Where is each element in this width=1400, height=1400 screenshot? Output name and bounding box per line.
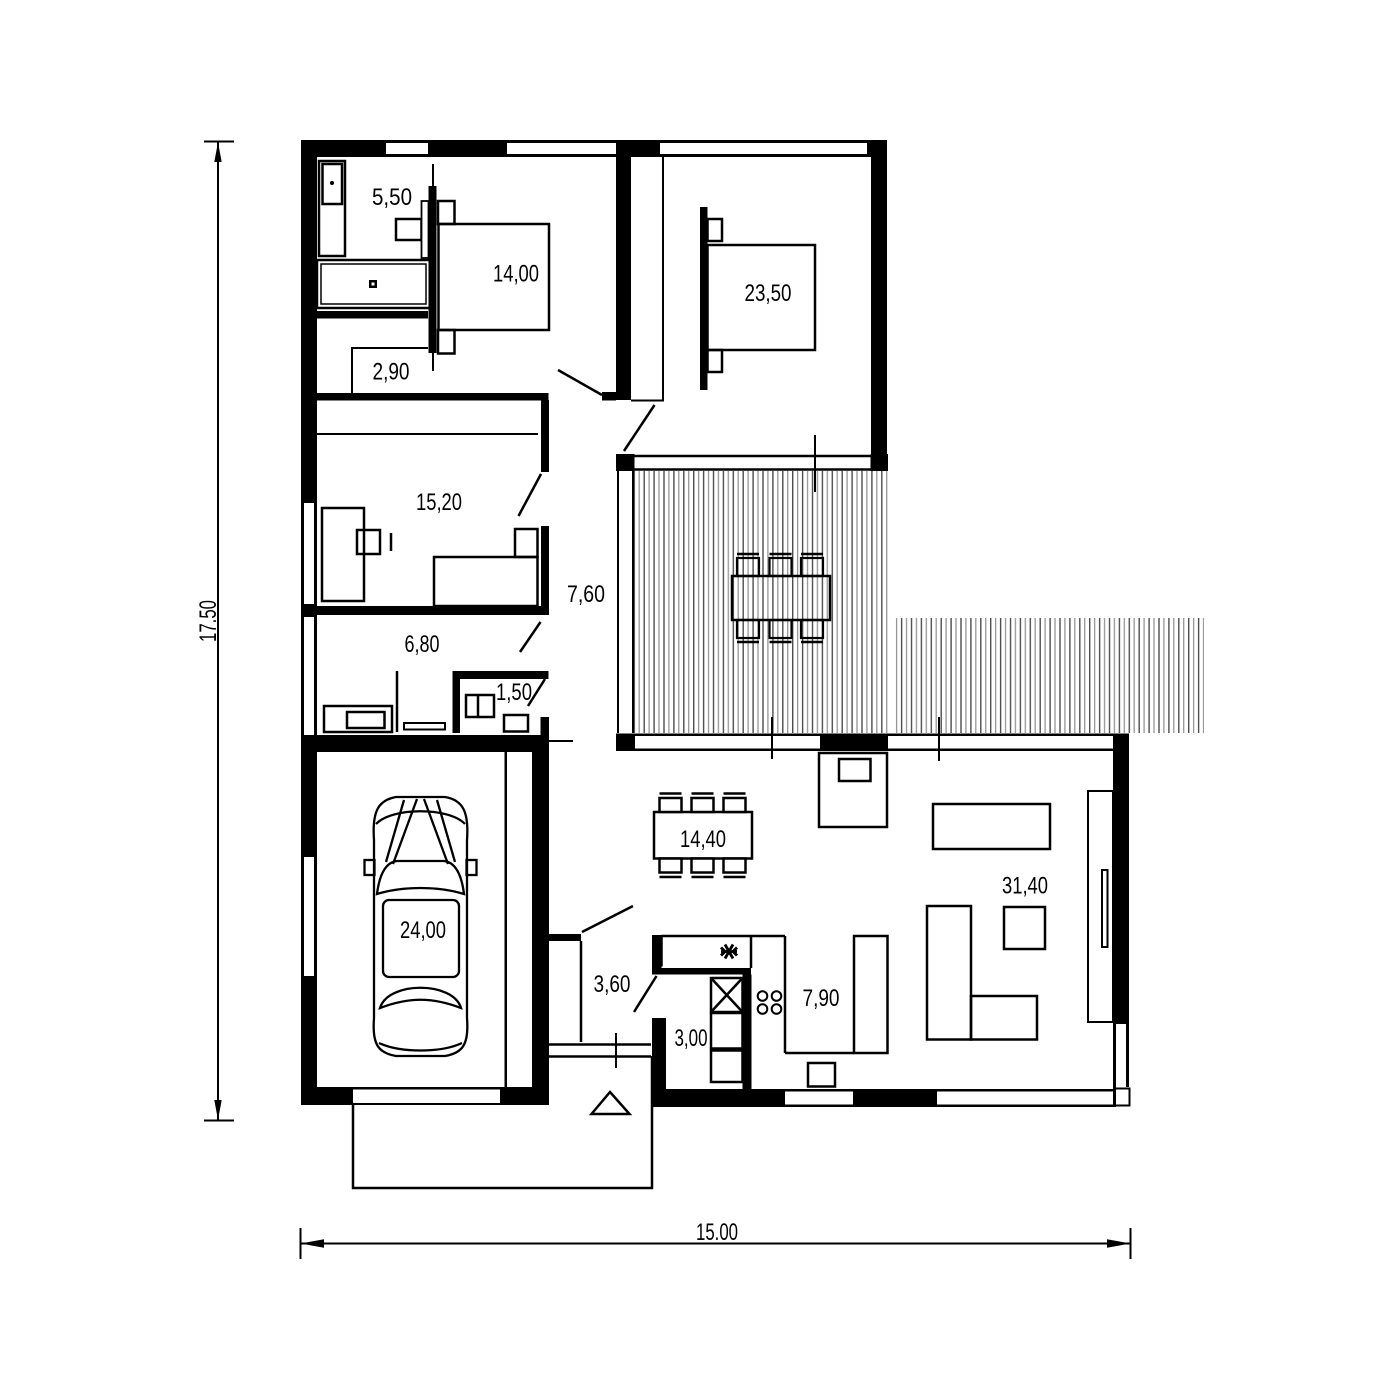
svg-text:23,50: 23,50 <box>745 280 792 307</box>
svg-text:14,00: 14,00 <box>493 261 539 288</box>
svg-text:14,40: 14,40 <box>680 826 726 853</box>
svg-text:17.50: 17.50 <box>195 600 222 642</box>
svg-text:5,50: 5,50 <box>372 184 412 211</box>
svg-text:6,80: 6,80 <box>405 631 440 658</box>
svg-text:1,50: 1,50 <box>496 679 532 706</box>
svg-text:7,60: 7,60 <box>567 581 605 608</box>
svg-text:15,20: 15,20 <box>416 489 462 516</box>
svg-text:24,00: 24,00 <box>400 917 446 944</box>
svg-text:7,90: 7,90 <box>803 985 840 1012</box>
svg-text:15.00: 15.00 <box>696 1219 738 1246</box>
svg-text:3,60: 3,60 <box>594 971 631 998</box>
svg-text:31,40: 31,40 <box>1002 873 1048 900</box>
svg-text:3,00: 3,00 <box>675 1025 708 1052</box>
svg-text:2,90: 2,90 <box>373 359 410 386</box>
